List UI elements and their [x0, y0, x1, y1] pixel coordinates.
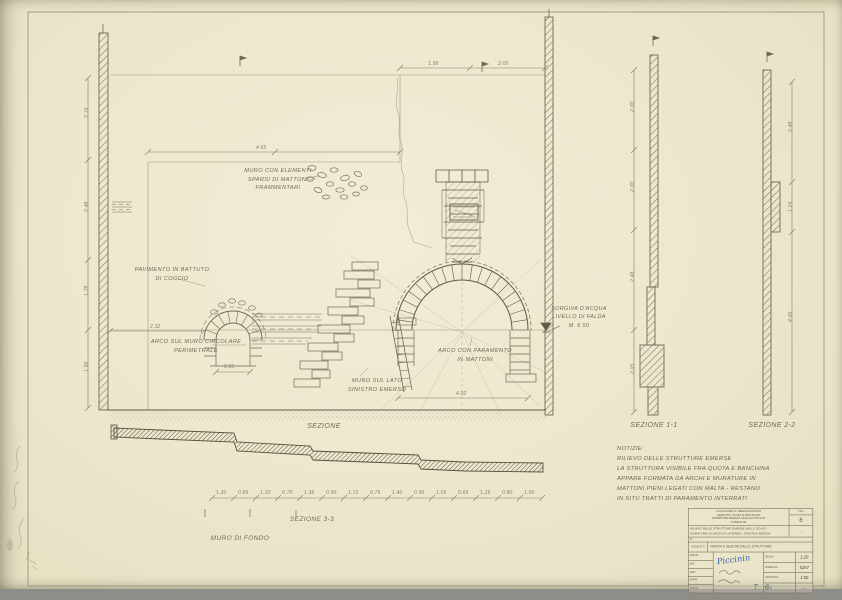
note-line: MATTONI PIENI LEGATI CON MALTA - RESTANO — [617, 484, 785, 494]
wall-middle — [545, 9, 553, 415]
dimension-value: 1.25 — [480, 490, 491, 496]
label-small-arch: ARCO SUL MURO CIRCOLAREPERIMETRALE — [144, 338, 248, 355]
wall-brick-patch — [112, 202, 132, 212]
note-line: LA STRUTTURA VISIBILE FRA QUOTA E BANCHI… — [617, 464, 785, 474]
bb-profile — [111, 425, 543, 518]
titleblock-description: RILIEVO DELLE STRUTTURE EMERSE NELLO SCA… — [689, 526, 790, 537]
label-scattered-masonry: MURO CON ELEMENTISPARSI DI MATTONIFRAMME… — [238, 167, 318, 193]
note-line: NOTIZIE: — [617, 444, 785, 454]
titleblock-table-row: ARCHIVIO1:50 — [764, 573, 813, 583]
dimension-value: 1.20 — [216, 490, 227, 496]
drawing-sheet: MURO CON ELEMENTISPARSI DI MATTONIFRAMME… — [0, 0, 842, 589]
dimension-value: 0.65 — [458, 490, 469, 496]
dimension-value: 4.65 — [256, 145, 267, 151]
label-floor: PAVIMENTO IN BATTUTODI COCCIO — [126, 266, 218, 283]
label-muro-fondo: MURO DI FONDO — [202, 534, 278, 544]
dimension-value: 0.85 — [238, 490, 249, 496]
stepped-masonry — [294, 262, 380, 387]
titleblock-table-row: DISEGNO5257 — [764, 563, 813, 573]
tav-value: 6 — [789, 515, 812, 525]
note-line: RILIEVO DELLE STRUTTURE EMERSE — [617, 454, 785, 464]
dimension-value: 1.35 — [304, 490, 315, 496]
wall-left — [99, 24, 108, 410]
dimension-value: 4.45 — [788, 311, 794, 322]
corner-plate-number: T. 6. — [753, 583, 773, 592]
dimension-value: 2.05 — [630, 363, 636, 374]
dimension-value: 4.02 — [456, 391, 467, 397]
margin-scribbles — [7, 446, 37, 569]
dimension-value: 1.00 — [524, 490, 535, 496]
dimension-value: 0.90 — [326, 490, 337, 496]
tav-label: TAV. — [789, 509, 812, 516]
dimension-value: 2.32 — [150, 324, 161, 330]
section-aa-wall — [640, 55, 664, 415]
note-line: APPARE FORMATA DA ARCHI E MURATURE IN — [617, 474, 785, 484]
dimension-value: 1.95 — [428, 61, 439, 67]
signature-ink: Piccinin — [716, 552, 751, 566]
dimension-value: 1.15 — [348, 490, 359, 496]
dimension-value: 0.80 — [502, 490, 513, 496]
titleblock-table-row: SCALA1:20 — [764, 552, 813, 562]
object-label: OGGETTO — [689, 542, 708, 551]
label-center-wall: MURO SUL LATOSINISTRO EMERSO — [330, 377, 424, 394]
dimension-value: 1.05 — [436, 490, 447, 496]
label-main-arch: ARCO CON PARAMENTOIN MATTONI — [424, 347, 526, 364]
titleblock-band: N. — [689, 537, 693, 541]
title-sezione-center: SEZIONE — [288, 422, 360, 433]
signature-row-label: VER. — [689, 569, 713, 577]
signature-row-label: APPR. — [689, 577, 713, 585]
section-cc-wall — [763, 70, 780, 415]
title-sezione-cc: SEZIONE 2-2 — [730, 421, 814, 432]
dimension-value: 1.95 — [84, 361, 90, 372]
dimension-value: 2.48 — [84, 201, 90, 212]
signature-row-label: GEOM. — [689, 552, 713, 560]
brick-coursing — [252, 314, 322, 344]
dimension-value: 0.85 — [224, 364, 235, 370]
dimension-value: 0.95 — [414, 490, 425, 496]
title-sezione-aa: SEZIONE 1-1 — [612, 421, 696, 432]
titleblock-header: CASSA PER IL MEZZOGIORNOSERVIZIO SCAVI E… — [689, 509, 790, 526]
dimension-value: 2.10 — [84, 107, 90, 118]
brick-pier — [436, 170, 488, 264]
ground-line — [108, 410, 546, 420]
dimension-value: 2.00 — [630, 101, 636, 112]
dimension-value: 2.00 — [630, 181, 636, 192]
notes-block: NOTIZIE:RILIEVO DELLE STRUTTURE EMERSELA… — [617, 444, 785, 504]
dimension-value: 1.78 — [84, 285, 90, 296]
scan-background: MURO CON ELEMENTISPARSI DI MATTONIFRAMME… — [0, 0, 842, 600]
dimension-value: 0.70 — [282, 490, 293, 496]
title-sezione-bb: SEZIONE 3-3 — [274, 515, 350, 525]
dimension-value: 2.48 — [630, 271, 636, 282]
object-text: PIANTA E SEZIONI DELLE STRUTTURE — [708, 542, 813, 551]
title-block: CASSA PER IL MEZZOGIORNOSERVIZIO SCAVI E… — [688, 508, 813, 593]
dimension-value: 2.05 — [498, 61, 509, 67]
dimension-value: 2.48 — [788, 121, 794, 132]
dimension-value: 1.10 — [260, 490, 271, 496]
dimension-value: 0.75 — [370, 490, 381, 496]
dimension-value: 1.24 — [788, 201, 794, 212]
small-arch — [200, 299, 266, 366]
signature-row-label: DIS. — [689, 560, 713, 568]
signature-labels-column: GEOM.DIS.VER.APPR.VISTO — [689, 552, 713, 592]
titleblock-side: — — [789, 526, 812, 537]
dimension-value: 1.40 — [392, 490, 403, 496]
label-water-level: SORGIVA D'ACQUALIVELLO DI FALDAM. 6.50 — [546, 305, 612, 330]
signature-row-label: VISTO — [689, 585, 713, 593]
note-line: IN SITU TRATTI DI PARAMENTO INTERRATI — [617, 494, 785, 504]
